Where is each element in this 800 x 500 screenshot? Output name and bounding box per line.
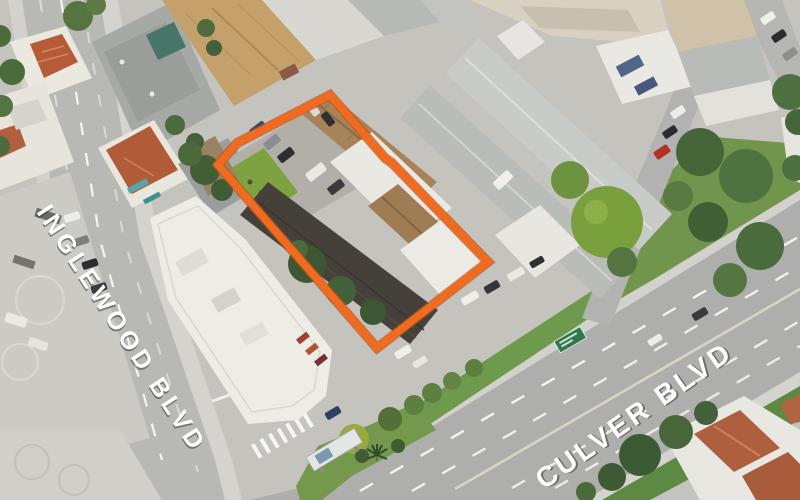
- tree: [197, 19, 215, 37]
- tree-highlight: [584, 200, 608, 224]
- roof-vent: [150, 92, 155, 97]
- tree: [676, 128, 724, 176]
- tree: [443, 372, 461, 390]
- tree: [598, 463, 626, 491]
- tree: [0, 59, 25, 85]
- aerial-photo: INGLEWOOD BLVD INGLEWOOD BLVD CULVER BLV…: [0, 0, 800, 500]
- tree: [719, 149, 773, 203]
- tree: [551, 161, 589, 199]
- tree: [607, 247, 637, 277]
- aerial-photo-stage: INGLEWOOD BLVD INGLEWOOD BLVD CULVER BLV…: [0, 0, 800, 500]
- tree: [663, 181, 693, 211]
- tree: [659, 415, 693, 449]
- tree: [165, 115, 185, 135]
- lawn-detail: [248, 180, 253, 185]
- tree: [694, 401, 718, 425]
- tree: [736, 222, 784, 270]
- tree: [378, 407, 402, 431]
- tree-large: [571, 186, 643, 258]
- shrub: [391, 439, 405, 453]
- tree: [404, 395, 424, 415]
- tree: [713, 263, 747, 297]
- tree: [688, 202, 728, 242]
- tree: [465, 359, 483, 377]
- tree: [422, 383, 442, 403]
- tree: [206, 40, 222, 56]
- tree: [360, 299, 386, 325]
- tree: [178, 142, 202, 166]
- roof-vent: [120, 60, 125, 65]
